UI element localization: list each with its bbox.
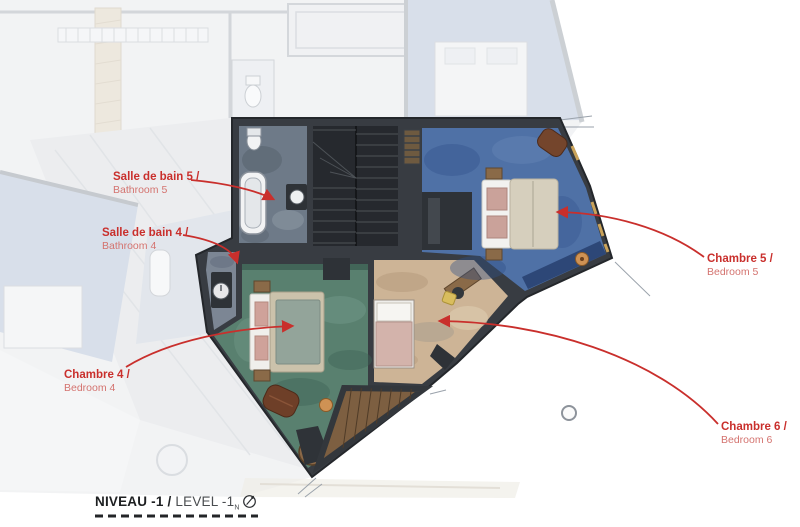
faded-pillow [445,48,475,64]
stool [320,399,333,412]
bed-pillow [487,188,507,210]
annotation-bedroom-5: Chambre 5 / Bedroom 5 [707,252,773,280]
column-marker-circle [562,406,576,420]
nightstand [254,370,270,381]
floor-plan-canvas: Salle de bain 5 / Bathroom 5 Salle de ba… [0,0,800,527]
floor-texture [424,144,480,176]
floor-texture [210,256,234,268]
annotation-subtitle: Bedroom 4 [64,382,130,395]
faded-pillow [487,48,517,64]
bed-pillow [487,216,507,238]
annotation-title: Chambre 6 / [721,420,787,434]
nightstand [486,249,502,260]
stair-shelf [404,130,420,164]
annotation-subtitle: Bedroom 5 [707,266,773,279]
level-title-fr: NIVEAU -1 / [95,494,171,509]
sink [290,190,304,204]
faded-cistern [246,76,260,85]
annotation-subtitle: Bathroom 4 [102,240,188,253]
faded-toilet [245,85,261,107]
wardrobe [428,198,440,244]
north-compass-icon [241,493,258,509]
nightstand [486,168,502,179]
faded-table [157,445,187,475]
floor-plan-drawing [0,0,800,527]
bed-pillow [255,302,268,326]
annotation-subtitle: Bedroom 6 [721,434,787,447]
bathtub-basin [245,178,261,228]
annotation-subtitle: Bathroom 5 [113,184,199,197]
floor-texture [272,210,304,230]
annotation-title: Chambre 5 / [707,252,773,266]
stool-center [580,257,584,261]
annotation-title: Salle de bain 5 / [113,170,199,184]
wardrobe [323,258,350,280]
faded-bathtub [150,250,170,296]
bathroom-5 [239,126,307,243]
floor-texture [242,146,282,174]
faded-bed [4,286,82,348]
annotation-bathroom-4: Salle de bain 4 / Bathroom 4 [102,226,188,254]
floor-texture [376,272,428,292]
annotation-bathroom-5: Salle de bain 5 / Bathroom 5 [113,170,199,198]
annotation-title: Salle de bain 4 / [102,226,188,240]
bed-duvet [376,322,412,366]
bed-duvet [510,179,558,249]
toilet-cistern [247,128,261,136]
bed-pillow [377,303,411,321]
floor-texture [448,306,488,330]
bed-blanket [276,300,320,364]
bed-pillow [255,336,268,360]
level-title-en: LEVEL -1 [171,494,234,509]
north-mark-label: N [234,505,239,512]
level-title: NIVEAU -1 / LEVEL -1N [95,493,258,512]
annotation-bedroom-4: Chambre 4 / Bedroom 4 [64,368,130,396]
floor-texture [328,350,372,370]
annotation-bedroom-6: Chambre 6 / Bedroom 6 [721,420,787,448]
nightstand [254,281,270,292]
annotation-title: Chambre 4 / [64,368,130,382]
